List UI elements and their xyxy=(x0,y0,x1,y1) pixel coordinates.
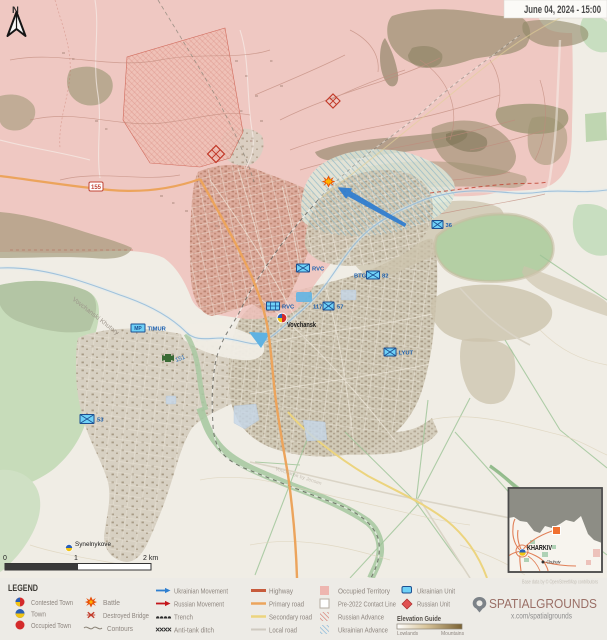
svg-text:Russian Unit: Russian Unit xyxy=(417,600,451,609)
svg-text:Pre-2022 Contact Line: Pre-2022 Contact Line xyxy=(338,600,396,609)
svg-text:Occupied Territory: Occupied Territory xyxy=(338,587,390,596)
svg-text:June 04, 2024 - 15:00: June 04, 2024 - 15:00 xyxy=(524,4,601,16)
svg-text:RVC: RVC xyxy=(282,305,295,311)
svg-text:Battle: Battle xyxy=(103,598,120,607)
svg-text:TIMUR: TIMUR xyxy=(148,327,167,333)
svg-text:SPATIALGROUNDS: SPATIALGROUNDS xyxy=(489,596,597,611)
svg-text:Primary road: Primary road xyxy=(269,600,304,609)
svg-text:Elevation Guide: Elevation Guide xyxy=(397,614,441,623)
svg-text:Russian Advance: Russian Advance xyxy=(338,613,384,622)
svg-text:RVC: RVC xyxy=(312,267,325,273)
svg-text:36: 36 xyxy=(446,223,453,229)
svg-text:Vovchansk: Vovchansk xyxy=(287,320,317,329)
svg-text:KHARKIV: KHARKIV xyxy=(527,545,552,552)
svg-text:1: 1 xyxy=(74,555,78,562)
svg-text:Russian Movement: Russian Movement xyxy=(174,600,225,609)
svg-text:Contours: Contours xyxy=(107,624,133,633)
svg-text:Ukrainian Unit: Ukrainian Unit xyxy=(417,587,456,596)
svg-text:Destroyed Bridge: Destroyed Bridge xyxy=(103,611,149,620)
svg-text:0: 0 xyxy=(3,555,7,562)
svg-text:x.com/spatialgrounds: x.com/spatialgrounds xyxy=(511,612,572,621)
svg-text:Ukrainian Movement: Ukrainian Movement xyxy=(174,587,229,596)
svg-text:Highway: Highway xyxy=(269,587,293,596)
svg-text:Local road: Local road xyxy=(269,626,297,635)
svg-text:Lowlands: Lowlands xyxy=(397,631,419,637)
svg-text:2 km: 2 km xyxy=(143,555,158,562)
svg-text:MP: MP xyxy=(134,326,142,332)
svg-text:Occupied Town: Occupied Town xyxy=(31,621,71,630)
svg-text:Chuhuiv: Chuhuiv xyxy=(547,560,561,566)
svg-text:Contested Town: Contested Town xyxy=(31,598,73,607)
svg-text:Mountains: Mountains xyxy=(441,631,465,637)
svg-text:BTG: BTG xyxy=(354,274,367,280)
svg-text:Secondary road: Secondary road xyxy=(269,613,312,622)
svg-text:Town: Town xyxy=(31,610,46,619)
svg-text:117: 117 xyxy=(313,305,322,311)
svg-text:Trench: Trench xyxy=(174,613,193,622)
svg-text:Synelnykove: Synelnykove xyxy=(75,541,111,548)
svg-text:LEGEND: LEGEND xyxy=(8,583,38,594)
svg-text:155: 155 xyxy=(91,185,102,191)
svg-text:Base data by © OpenStreetMap c: Base data by © OpenStreetMap contributor… xyxy=(522,579,598,586)
svg-text:53: 53 xyxy=(97,418,104,424)
svg-text:82: 82 xyxy=(382,274,388,280)
svg-text:LYUT: LYUT xyxy=(399,351,414,357)
svg-text:57: 57 xyxy=(337,305,343,311)
svg-text:Anti-tank ditch: Anti-tank ditch xyxy=(174,626,214,635)
svg-text:Ukrainian Advance: Ukrainian Advance xyxy=(338,626,388,635)
